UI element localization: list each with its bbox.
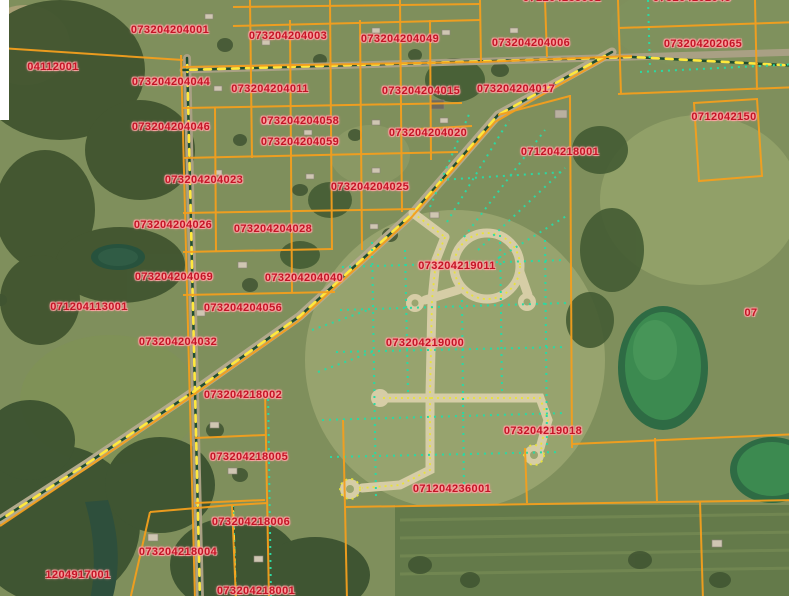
gis-map-canvas[interactable]: 0712042350010732042020450732042040010732… bbox=[0, 0, 800, 600]
edge-mask-left bbox=[0, 0, 9, 120]
edge-mask-right bbox=[789, 0, 800, 600]
edge-mask-bottom bbox=[0, 596, 800, 600]
aerial-map-image bbox=[0, 0, 800, 600]
